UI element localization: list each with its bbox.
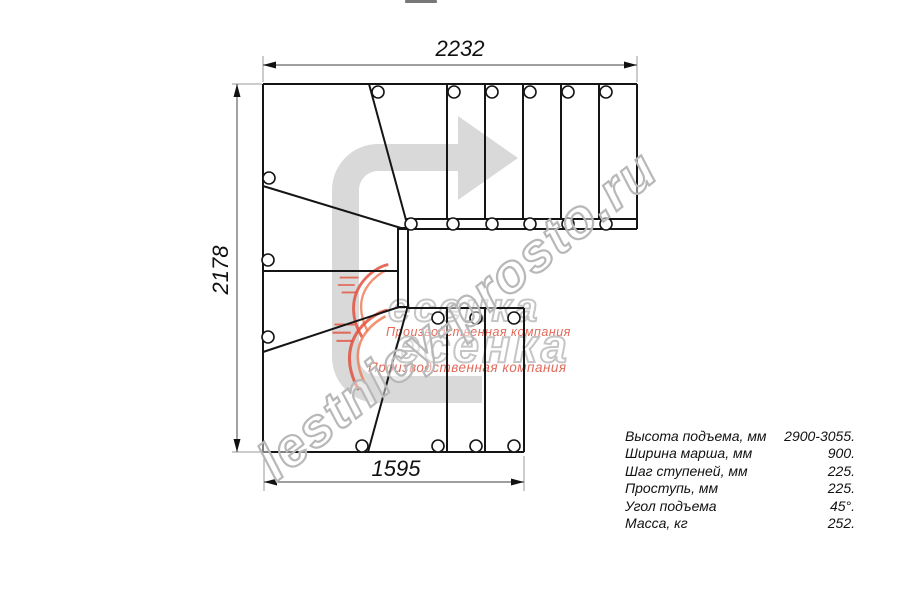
text-layer: 2232 2178 1595 Высота подъема, мм 2900-3…	[0, 0, 900, 600]
spec-label: Проступь, мм	[625, 480, 718, 497]
spec-label: Угол подъема	[625, 498, 717, 515]
spec-row: Проступь, мм 225.	[625, 480, 855, 497]
spec-label: Масса, кг	[625, 515, 688, 532]
cropped-artifact	[405, 0, 437, 3]
dimension-left: 2178	[208, 220, 234, 320]
spec-row: Ширина марша, мм 900.	[625, 445, 855, 462]
spec-value: 900.	[828, 445, 855, 462]
drawing-canvas: есенка Производственная компания есенка …	[0, 0, 900, 600]
spec-value: 225.	[828, 463, 855, 480]
spec-row: Шаг ступеней, мм 225.	[625, 463, 855, 480]
spec-label: Высота подъема, мм	[625, 428, 767, 445]
spec-table: Высота подъема, мм 2900-3055. Ширина мар…	[625, 428, 855, 532]
spec-row: Угол подъема 45°.	[625, 498, 855, 515]
spec-value: 2900-3055.	[784, 428, 855, 445]
spec-value: 45°.	[830, 498, 855, 515]
dimension-bottom: 1595	[346, 456, 446, 482]
spec-value: 252.	[828, 515, 855, 532]
spec-row: Масса, кг 252.	[625, 515, 855, 532]
dimension-top: 2232	[410, 36, 510, 62]
spec-value: 225.	[828, 480, 855, 497]
spec-label: Ширина марша, мм	[625, 445, 752, 462]
spec-row: Высота подъема, мм 2900-3055.	[625, 428, 855, 445]
spec-label: Шаг ступеней, мм	[625, 463, 748, 480]
